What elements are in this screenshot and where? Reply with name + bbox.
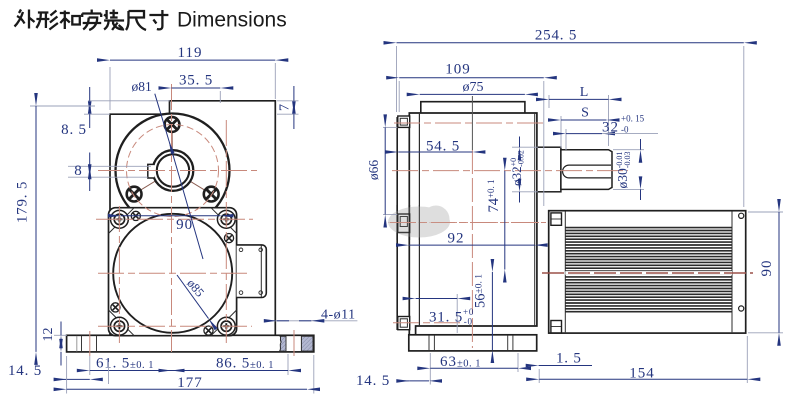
svg-text:31. 5+0-0: 31. 5+0-0	[429, 307, 474, 327]
svg-text:1. 5: 1. 5	[556, 351, 582, 367]
svg-text:14. 5: 14. 5	[356, 373, 390, 389]
svg-text:54. 5: 54. 5	[426, 139, 460, 155]
svg-text:177: 177	[177, 375, 203, 391]
svg-text:154: 154	[629, 366, 655, 382]
svg-text:32: 32	[602, 120, 619, 136]
svg-text:S: S	[581, 106, 589, 121]
svg-text:14. 5: 14. 5	[8, 363, 42, 379]
svg-text:ø75: ø75	[463, 80, 484, 95]
svg-text:179. 5: 179. 5	[15, 181, 31, 223]
svg-text:+0. 15: +0. 15	[621, 114, 645, 124]
svg-text:119: 119	[178, 45, 203, 61]
svg-text:90: 90	[759, 260, 775, 277]
svg-text:12: 12	[41, 328, 56, 342]
svg-text:ø66: ø66	[366, 160, 381, 181]
svg-text:-0: -0	[621, 125, 629, 135]
svg-text:254. 5: 254. 5	[535, 28, 577, 44]
svg-text:35. 5: 35. 5	[179, 73, 213, 89]
svg-text:109: 109	[445, 62, 471, 78]
svg-text:Dimensions: Dimensions	[177, 9, 287, 32]
svg-text:8. 5: 8. 5	[61, 122, 87, 138]
svg-text:7: 7	[278, 104, 293, 111]
svg-text:L: L	[580, 85, 589, 100]
svg-text:4-ø11: 4-ø11	[321, 308, 356, 323]
svg-text:ø30-0.01-0.03: ø30-0.01-0.03	[615, 151, 632, 188]
svg-text:8: 8	[74, 163, 82, 179]
svg-text:92: 92	[448, 231, 465, 247]
svg-text:90: 90	[176, 217, 193, 233]
svg-text:ø81: ø81	[132, 79, 152, 94]
